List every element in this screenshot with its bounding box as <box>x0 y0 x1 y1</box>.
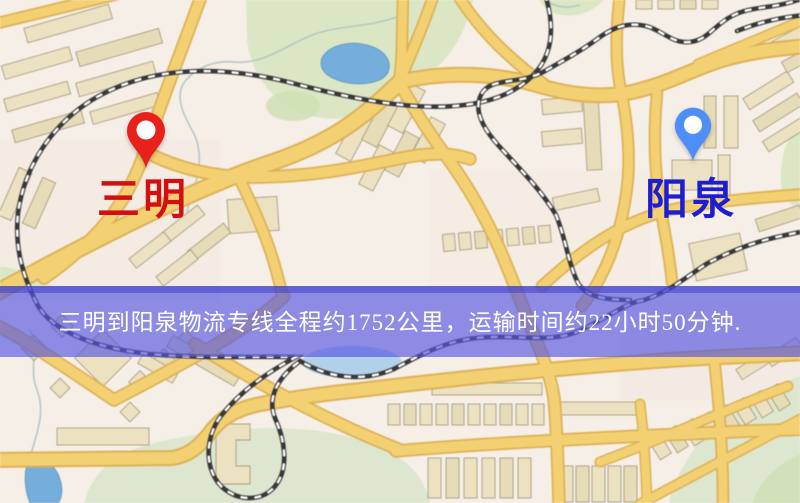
route-info-banner: 三明到阳泉物流专线全程约1752公里，运输时间约22小时50分钟. <box>0 286 800 357</box>
destination-pin-icon[interactable] <box>667 100 719 163</box>
destination-label: 阳泉 <box>631 178 751 222</box>
map-view: 三明 阳泉 三明到阳泉物流专线全程约1752公里，运输时间约22小时50分钟. <box>0 0 800 503</box>
origin-pin-icon[interactable] <box>119 104 173 170</box>
map-canvas[interactable] <box>0 0 800 503</box>
route-info-text: 三明到阳泉物流专线全程约1752公里，运输时间约22小时50分钟. <box>0 293 800 353</box>
origin-label: 三明 <box>83 178 203 222</box>
